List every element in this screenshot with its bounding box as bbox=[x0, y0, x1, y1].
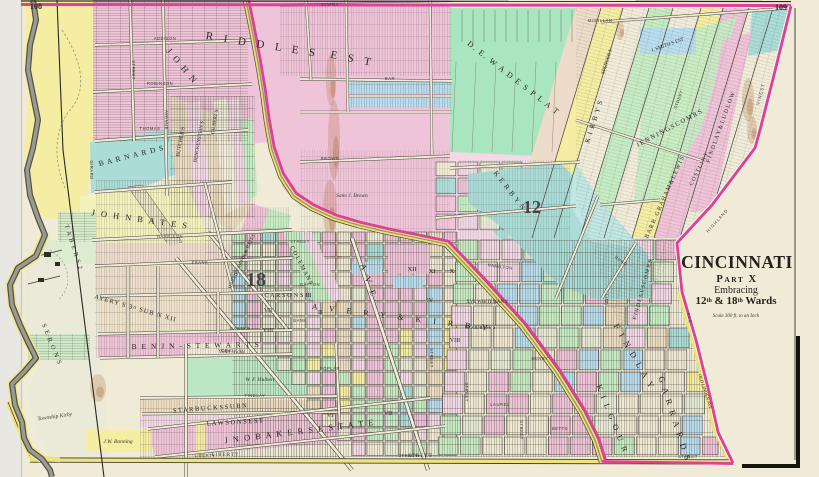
svg-text:STREET: STREET bbox=[464, 382, 469, 402]
svg-text:STREET: STREET bbox=[131, 60, 136, 80]
svg-text:DAYTON: DAYTON bbox=[300, 282, 320, 287]
svg-text:PART X: PART X bbox=[716, 274, 757, 285]
svg-text:FINDLAY: FINDLAY bbox=[245, 393, 266, 398]
svg-text:VIII: VIII bbox=[450, 338, 460, 344]
svg-text:LIBERTY: LIBERTY bbox=[195, 453, 216, 458]
svg-text:108: 108 bbox=[30, 2, 42, 11]
svg-text:EAR: EAR bbox=[385, 76, 395, 81]
svg-text:ROBINSON: ROBINSON bbox=[147, 81, 173, 86]
svg-text:XVI. WHITEMAN S: XVI. WHITEMAN S bbox=[466, 300, 508, 305]
svg-text:McMILLAN: McMILLAN bbox=[588, 18, 613, 23]
svg-text:LINN: LINN bbox=[604, 294, 609, 306]
svg-text:STREET: STREET bbox=[290, 239, 310, 244]
svg-text:EASTER: EASTER bbox=[230, 326, 250, 331]
svg-text:18: 18 bbox=[246, 269, 266, 291]
svg-text:STREET: STREET bbox=[429, 348, 434, 368]
svg-text:LAUREL: LAUREL bbox=[490, 402, 509, 407]
svg-text:W. F. Hulbert: W. F. Hulbert bbox=[245, 377, 275, 383]
svg-text:Saml J. Brown: Saml J. Brown bbox=[336, 193, 368, 199]
svg-text:C A R S O N S III: C A R S O N S III bbox=[264, 292, 311, 299]
svg-text:VII: VII bbox=[264, 308, 272, 314]
svg-text:POPLAR: POPLAR bbox=[320, 366, 340, 371]
svg-text:AVENUE: AVENUE bbox=[164, 110, 169, 130]
svg-text:BANK: BANK bbox=[293, 318, 306, 323]
svg-text:ELVIRA: ELVIRA bbox=[321, 2, 339, 7]
svg-text:ADDISON: ADDISON bbox=[154, 36, 177, 41]
svg-text:VIII: VIII bbox=[263, 328, 273, 334]
svg-text:J.W. Banning: J.W. Banning bbox=[103, 439, 133, 445]
svg-text:HENRY: HENRY bbox=[531, 356, 548, 361]
svg-text:L I B E R T Y: L I B E R T Y bbox=[212, 453, 239, 458]
svg-text:VI: VI bbox=[327, 413, 333, 419]
svg-text:BETTS: BETTS bbox=[552, 426, 568, 431]
svg-text:IV: IV bbox=[427, 298, 434, 304]
svg-text:YORK: YORK bbox=[218, 348, 232, 353]
svg-text:STREET: STREET bbox=[398, 453, 418, 458]
svg-text:STREET: STREET bbox=[678, 454, 698, 459]
svg-text:XII: XII bbox=[407, 266, 416, 273]
svg-text:II: II bbox=[318, 310, 322, 316]
svg-text:XI: XI bbox=[429, 268, 436, 275]
svg-text:BROWN: BROWN bbox=[321, 156, 340, 161]
svg-text:HARRISON: HARRISON bbox=[157, 234, 183, 239]
svg-text:FRANK: FRANK bbox=[192, 260, 209, 265]
svg-text:CINCINNATI: CINCINNATI bbox=[681, 252, 793, 272]
svg-text:GIRARD: GIRARD bbox=[89, 160, 94, 179]
svg-text:VII: VII bbox=[384, 411, 392, 417]
svg-text:Scale 300 ft. to an Inch: Scale 300 ft. to an Inch bbox=[713, 314, 760, 319]
svg-text:WOODRUFF S: WOODRUFF S bbox=[465, 326, 496, 331]
svg-text:THOMAS: THOMAS bbox=[140, 126, 161, 131]
svg-text:X: X bbox=[450, 268, 455, 275]
svg-text:109: 109 bbox=[775, 3, 787, 12]
svg-text:STREET: STREET bbox=[519, 420, 524, 440]
